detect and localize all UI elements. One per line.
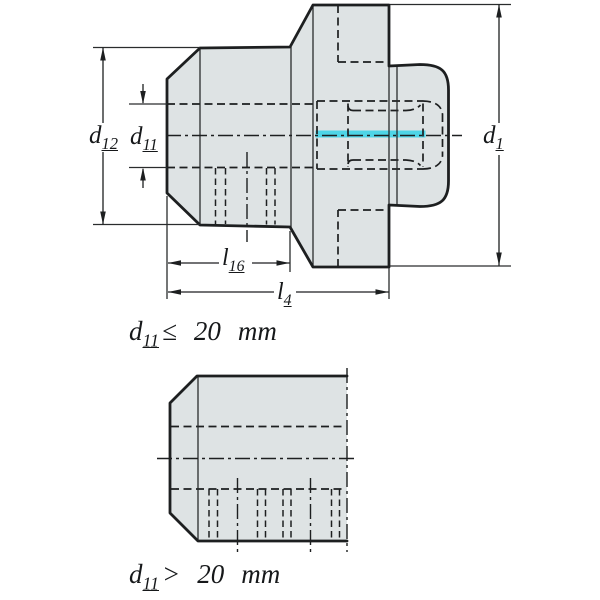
caption-fig2: d11>20mm	[129, 561, 280, 593]
technical-drawing-page: d12 d11 d1 l16 l4 d11≤20mm d11>20mm	[0, 0, 600, 600]
caption-fig1: d11≤20mm	[129, 318, 277, 350]
label-l16: l16	[222, 246, 245, 275]
bore-highlight-band	[316, 131, 426, 138]
label-d12: d12	[89, 123, 118, 153]
label-d11: d11	[130, 124, 158, 154]
label-d1: d1	[483, 123, 504, 153]
label-l4: l4	[277, 280, 292, 309]
figure2-section-view	[157, 368, 356, 553]
drawing-canvas	[0, 0, 600, 600]
